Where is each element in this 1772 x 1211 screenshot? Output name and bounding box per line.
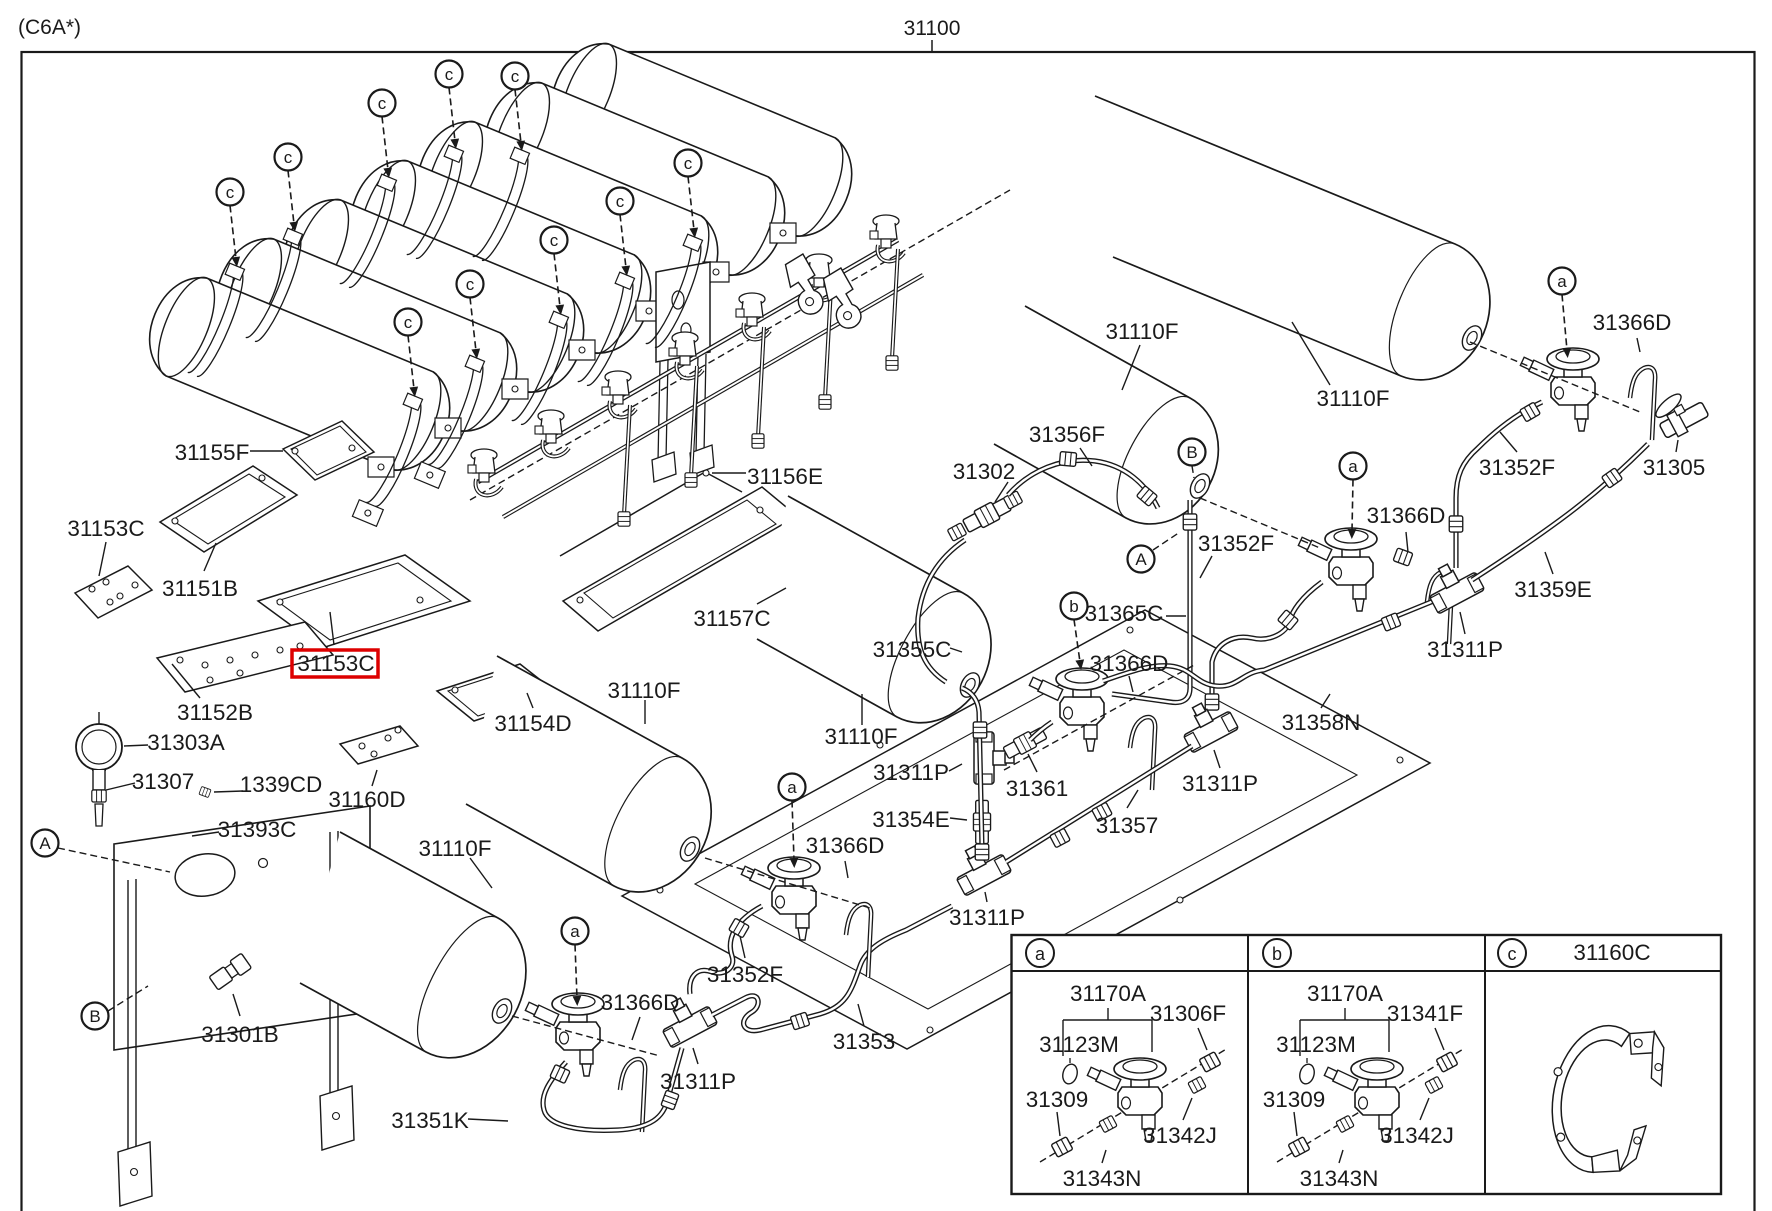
svg-text:31311P: 31311P: [1182, 771, 1258, 796]
svg-text:31110F: 31110F: [608, 678, 681, 703]
svg-text:31311P: 31311P: [873, 760, 949, 785]
svg-text:31152B: 31152B: [177, 700, 253, 725]
svg-text:31342J: 31342J: [1143, 1123, 1217, 1148]
svg-text:31359E: 31359E: [1514, 577, 1592, 602]
svg-text:31352F: 31352F: [1198, 531, 1274, 556]
svg-text:31366D: 31366D: [1367, 503, 1446, 528]
svg-text:31153C: 31153C: [67, 516, 144, 541]
svg-text:31160D: 31160D: [328, 787, 405, 812]
svg-text:a: a: [1035, 944, 1046, 964]
svg-text:31170A: 31170A: [1070, 981, 1146, 1006]
svg-text:c: c: [378, 94, 387, 113]
svg-text:31305: 31305: [1643, 455, 1706, 480]
svg-text:31311P: 31311P: [949, 905, 1025, 930]
svg-text:31357: 31357: [1096, 813, 1159, 838]
svg-text:31100: 31100: [904, 17, 961, 40]
svg-text:31366D: 31366D: [601, 990, 680, 1015]
svg-text:31160C: 31160C: [1573, 940, 1650, 965]
svg-text:31309: 31309: [1263, 1087, 1326, 1112]
svg-text:31352F: 31352F: [1479, 455, 1555, 480]
svg-text:31365C: 31365C: [1085, 601, 1164, 626]
svg-text:31306F: 31306F: [1150, 1001, 1226, 1026]
svg-text:31343N: 31343N: [1063, 1166, 1142, 1191]
svg-text:31155F: 31155F: [175, 440, 250, 465]
svg-text:31153C: 31153C: [297, 651, 374, 676]
svg-text:31123M: 31123M: [1039, 1032, 1119, 1057]
svg-text:31110F: 31110F: [1317, 386, 1390, 411]
svg-text:(C6A*): (C6A*): [18, 16, 81, 39]
svg-text:c: c: [404, 313, 413, 332]
svg-text:a: a: [1557, 272, 1567, 291]
svg-text:31361: 31361: [1006, 776, 1069, 801]
svg-text:31366D: 31366D: [806, 833, 885, 858]
svg-text:31354E: 31354E: [872, 807, 950, 832]
svg-text:31307: 31307: [132, 769, 195, 794]
svg-text:31309: 31309: [1026, 1087, 1089, 1112]
svg-text:31351K: 31351K: [391, 1108, 469, 1133]
svg-text:31110F: 31110F: [419, 836, 492, 861]
svg-text:31393C: 31393C: [218, 817, 297, 842]
svg-text:A: A: [1135, 550, 1147, 569]
svg-text:31366D: 31366D: [1090, 651, 1169, 676]
svg-text:31352F: 31352F: [707, 962, 783, 987]
svg-text:c: c: [616, 192, 625, 211]
svg-text:31311P: 31311P: [660, 1069, 736, 1094]
svg-text:31342J: 31342J: [1380, 1123, 1454, 1148]
svg-text:31301B: 31301B: [201, 1022, 279, 1047]
svg-text:c: c: [1508, 944, 1517, 964]
svg-text:31356F: 31356F: [1029, 422, 1105, 447]
svg-text:a: a: [570, 922, 580, 941]
svg-text:a: a: [787, 778, 797, 797]
svg-text:31311P: 31311P: [1427, 637, 1503, 662]
svg-text:31170A: 31170A: [1307, 981, 1383, 1006]
svg-text:31154D: 31154D: [494, 711, 571, 736]
svg-text:31302: 31302: [953, 459, 1016, 484]
svg-text:31366D: 31366D: [1593, 310, 1672, 335]
svg-text:B: B: [89, 1007, 100, 1026]
svg-text:c: c: [445, 65, 454, 84]
svg-text:31358N: 31358N: [1282, 710, 1361, 735]
svg-text:31123M: 31123M: [1276, 1032, 1356, 1057]
svg-text:31110F: 31110F: [825, 724, 898, 749]
svg-text:31156E: 31156E: [747, 464, 823, 489]
svg-text:c: c: [684, 154, 693, 173]
svg-text:1339CD: 1339CD: [240, 772, 323, 797]
svg-text:31157C: 31157C: [693, 606, 770, 631]
svg-text:c: c: [284, 148, 293, 167]
svg-text:B: B: [1186, 443, 1197, 462]
svg-text:b: b: [1272, 944, 1282, 964]
svg-text:b: b: [1069, 597, 1078, 616]
svg-text:A: A: [39, 834, 51, 853]
svg-text:c: c: [511, 67, 520, 86]
svg-text:31110F: 31110F: [1106, 319, 1179, 344]
svg-text:c: c: [226, 183, 235, 202]
svg-text:31341F: 31341F: [1387, 1001, 1463, 1026]
svg-text:a: a: [1348, 457, 1358, 476]
svg-text:31355C: 31355C: [873, 637, 952, 662]
svg-text:31343N: 31343N: [1300, 1166, 1379, 1191]
svg-text:31353: 31353: [833, 1029, 896, 1054]
svg-text:c: c: [466, 275, 475, 294]
svg-text:c: c: [550, 231, 559, 250]
svg-text:31303A: 31303A: [147, 730, 225, 755]
svg-text:31151B: 31151B: [162, 576, 238, 601]
